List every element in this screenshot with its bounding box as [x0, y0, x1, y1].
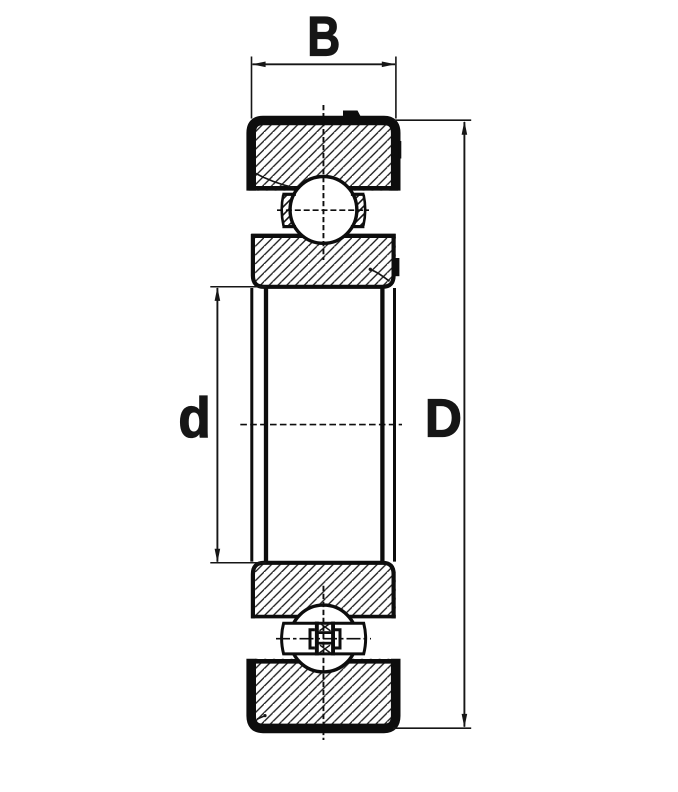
svg-text:D: D	[425, 388, 462, 448]
svg-text:d: d	[178, 386, 210, 450]
svg-text:B: B	[307, 4, 340, 67]
